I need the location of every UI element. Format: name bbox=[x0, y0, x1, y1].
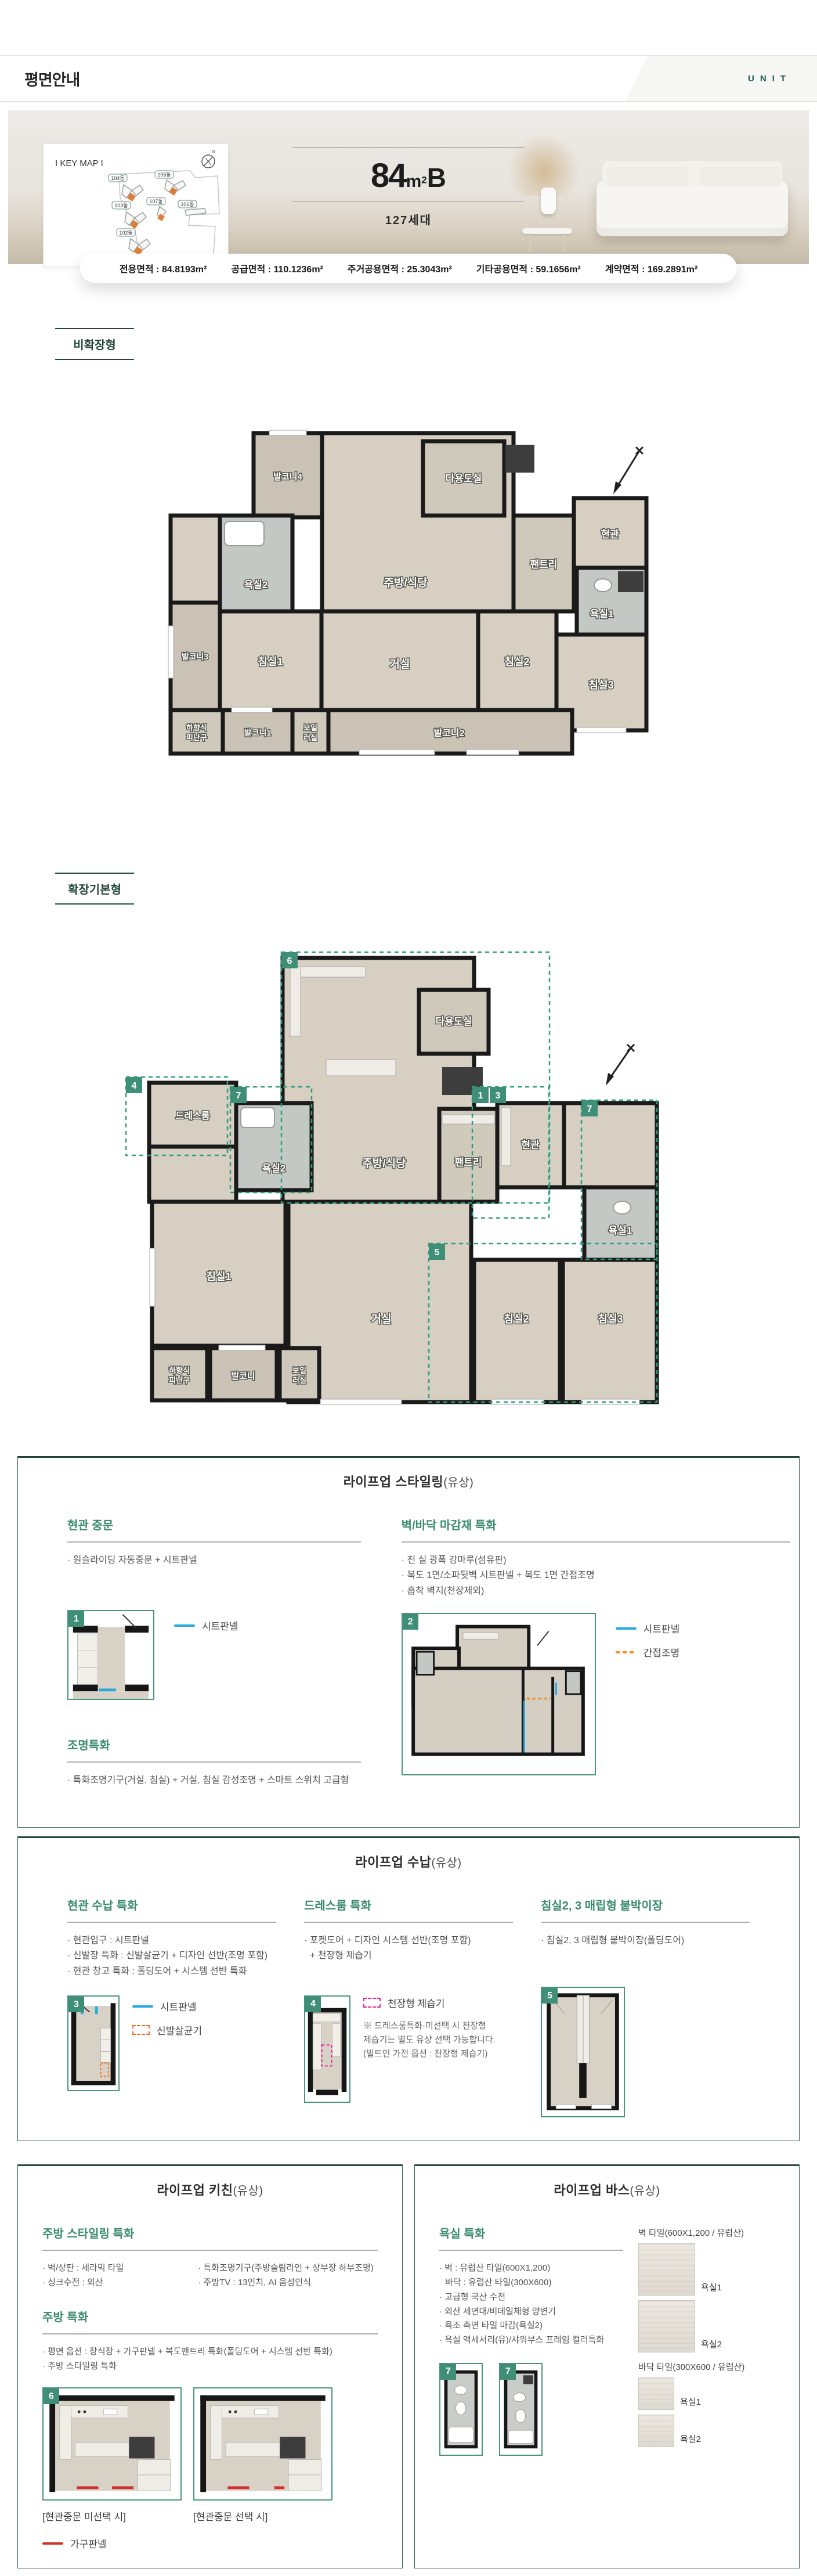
option-badge: 7 bbox=[500, 2364, 516, 2380]
bath-tiles-col: 벽 타일(600X1,200 / 유럽산) 욕실1 욕실2 바닥 타일(300X… bbox=[638, 2224, 775, 2456]
thumb-wall-floor-drawing bbox=[403, 1614, 595, 1774]
storage-col-entrance: 현관 수납 특화 · 현관입구 : 시트판넬 · 신발장 특화 : 신발살균기 … bbox=[67, 1896, 276, 2117]
svg-text:7: 7 bbox=[587, 1104, 592, 1114]
kitchen-caption-no-door: [현관중문 미선택 시] bbox=[42, 2509, 182, 2523]
bullet: · 특화조명기구(거실, 침실) + 거실, 침실 감성조명 + 스마트 스위치… bbox=[67, 1773, 361, 1788]
heading-bath-special: 욕실 특화 bbox=[439, 2224, 623, 2241]
heading-rule bbox=[541, 1922, 750, 1923]
wall-tile-swatch-bath1 bbox=[638, 2243, 695, 2296]
toilet bbox=[594, 579, 612, 592]
bullet: · 침실2, 3 매립형 붙박이장(폴딩도어) bbox=[541, 1933, 750, 1948]
room-label: 발코니2 bbox=[433, 728, 464, 738]
compass-icon: N bbox=[202, 149, 215, 168]
heading-rule bbox=[67, 1761, 361, 1763]
svg-text:6: 6 bbox=[287, 956, 292, 966]
tile-label: 욕실2 bbox=[701, 2338, 722, 2352]
svg-text:7: 7 bbox=[236, 1091, 241, 1101]
legend-sheet-panel: 시트판넬 bbox=[174, 1618, 238, 1633]
bullet: · 포켓도어 + 디자인 시스템 선반(조명 포함) bbox=[304, 1933, 513, 1948]
entrance-arrow-icon bbox=[613, 447, 643, 494]
heading-entrance-storage: 현관 수납 특화 bbox=[67, 1896, 276, 1913]
households-count: 127세대 bbox=[292, 211, 525, 228]
section-lifeup-storage: 라이프업 수납(유상) 현관 수납 특화 · 현관입구 : 시트판넬 · 신발장… bbox=[17, 1836, 800, 2141]
legend-dehumidifier: 천장형 제습기 bbox=[363, 1995, 496, 2010]
hero-banner: I KEY MAP I N bbox=[8, 110, 809, 264]
keymap-drawing: I KEY MAP I N bbox=[44, 144, 229, 268]
area-item: 기타공용면적 : 59.1656m² bbox=[476, 261, 581, 275]
thumb-builtin-closet-drawing bbox=[542, 1988, 624, 2116]
tag-nonexpanded: 비확장형 bbox=[55, 328, 134, 360]
bottom-sections: 라이프업 키친(유상) 주방 스타일링 특화 · 벽/상판 : 세라믹 타일 ·… bbox=[17, 2164, 800, 2568]
room-label: 주방/식당 bbox=[362, 1157, 406, 1170]
floor-tile-swatch-bath2 bbox=[638, 2415, 674, 2447]
bullet: · 주방 스타일링 특화 bbox=[42, 2359, 378, 2374]
title-rule-bottom bbox=[292, 201, 525, 201]
room-label: 팬트리 bbox=[454, 1157, 482, 1168]
room-label: 러실 bbox=[303, 733, 317, 742]
dressroom-note: 제습기는 별도 유상 선택 가능합니다. bbox=[363, 2033, 496, 2047]
bullet: · 벽 : 유럽산 타일(600X1,200) bbox=[439, 2261, 623, 2276]
option-badge: 2 bbox=[403, 1614, 418, 1630]
room-label: 발코니1 bbox=[244, 728, 272, 737]
side-table bbox=[522, 228, 572, 234]
room-label: 주방/식당 bbox=[384, 577, 428, 589]
section-title: 라이프업 바스(유상) bbox=[439, 2180, 775, 2199]
tile-label: 욕실1 bbox=[680, 2395, 701, 2410]
heading-kitchen-styling: 주방 스타일링 특화 bbox=[42, 2224, 378, 2241]
room-label: 보일 bbox=[292, 1366, 306, 1375]
option-badge: 5 bbox=[542, 1988, 558, 2004]
dehumidifier-swatch bbox=[363, 1998, 381, 2008]
section-title: 라이프업 스타일링(유상) bbox=[67, 1472, 750, 1490]
heading-rule bbox=[42, 2250, 378, 2251]
room-label: 욕실2 bbox=[262, 1163, 285, 1174]
heading-rule bbox=[67, 1541, 361, 1543]
header-corner-panel: UNIT bbox=[626, 56, 817, 101]
svg-text:105동: 105동 bbox=[157, 172, 171, 178]
bullet: · 평면 옵션 : 장식장 + 가구판넬 + 복도팬트리 특화(폴딩도어 + 시… bbox=[42, 2345, 378, 2359]
section-lifeup-bath: 라이프업 바스(유상) 욕실 특화 · 벽 : 유럽산 타일(600X1,200… bbox=[414, 2164, 800, 2568]
room-label: 현관 bbox=[521, 1140, 540, 1151]
tile-label: 욕실2 bbox=[680, 2433, 701, 2447]
room-label: 다용도실 bbox=[435, 1016, 472, 1027]
styling-left-col: 현관 중문 · 원슬라이딩 자동중문 + 시트판넬 1 bbox=[67, 1516, 361, 1789]
heading-rule bbox=[42, 2333, 378, 2334]
option-badge: 7 bbox=[440, 2364, 456, 2380]
room-label: 러실 bbox=[292, 1376, 306, 1385]
floorplan-expanded: 6 4 7 1 3 7 5 다용도실 주방/식당 팬트리 현관 드레스룸 욕실2… bbox=[117, 935, 700, 1405]
bullet: + 천장형 제습기 bbox=[304, 1948, 513, 1963]
area-item: 계약면적 : 169.2891m² bbox=[605, 261, 697, 275]
room-label: 침실1 bbox=[206, 1271, 231, 1282]
room-label: 피난구 bbox=[186, 733, 207, 742]
heading-rule bbox=[67, 1922, 276, 1923]
bullet: · 전 실 광폭 강마루(섬유판) bbox=[402, 1553, 790, 1568]
keymap-card: I KEY MAP I N bbox=[43, 143, 229, 267]
bathtub bbox=[241, 1108, 274, 1127]
toilet bbox=[613, 1201, 631, 1214]
svg-text:1: 1 bbox=[478, 1091, 483, 1101]
heading-rule bbox=[304, 1922, 513, 1923]
heading-rule bbox=[402, 1541, 790, 1543]
room-label: 발코니 bbox=[231, 1371, 255, 1381]
room-label: 하향식 bbox=[169, 1366, 190, 1375]
bullet: 바닥 : 유럽산 타일(300X600) bbox=[439, 2276, 623, 2290]
room-label: 욕실1 bbox=[590, 608, 614, 619]
bullet: · 특화조명기구(주방슬림라인 + 상부장 하부조명) bbox=[198, 2261, 386, 2276]
storage-col-dressroom: 드레스룸 특화 · 포켓도어 + 디자인 시스템 선반(조명 포함) + 천장형… bbox=[304, 1896, 513, 2117]
heading-builtin-closet: 침실2, 3 매립형 붙박이장 bbox=[541, 1896, 750, 1913]
option-badge: 6 bbox=[44, 2388, 59, 2404]
floor-tile-swatch-bath1 bbox=[638, 2377, 674, 2410]
floorplan-nonexpanded-wrap: 발코니4 다용도실 주방/식당 팬트리 현관 욕실2 욕실1 발코니3 침실1 … bbox=[0, 411, 817, 756]
bullet: · 욕실 액세서리(유)/샤워부스 프레임 컬러특화 bbox=[439, 2333, 623, 2348]
room-label: 거실 bbox=[371, 1313, 391, 1325]
shoe-sterilizer-swatch bbox=[132, 2025, 150, 2035]
bath-left-col: 욕실 특화 · 벽 : 유럽산 타일(600X1,200) 바닥 : 유럽산 타… bbox=[439, 2224, 623, 2456]
svg-text:107동: 107동 bbox=[149, 199, 162, 204]
bathtub bbox=[225, 521, 264, 546]
storage-col-closet: 침실2, 3 매립형 붙박이장 · 침실2, 3 매립형 붙박이장(폴딩도어) … bbox=[541, 1896, 750, 2117]
bullet: · 현관 창고 특화 : 폴딩도어 + 시스템 선반 특화 bbox=[67, 1964, 276, 1979]
legend-sheet-panel: 시트판넬 bbox=[616, 1621, 680, 1635]
dressroom-note: (빌트인 가전 옵션 : 천장형 제습기) bbox=[363, 2047, 496, 2061]
area-item: 공급면적 : 110.1236m² bbox=[231, 261, 323, 275]
legend-furniture-panel: 가구판넬 bbox=[42, 2536, 378, 2550]
option-badge: 3 bbox=[68, 1997, 84, 2012]
unit-name: 84m2B bbox=[292, 148, 525, 201]
bullet: · 외산 세면대/비데일체형 양변기 bbox=[439, 2305, 623, 2319]
kitchen-caption-with-door: [현관중문 선택 시] bbox=[193, 2509, 332, 2523]
bullet: · 벽/상판 : 세라믹 타일 bbox=[42, 2261, 190, 2276]
bullet: · 복도 1면/소파뒷벽 시트판넬 + 복도 1면 간접조명 bbox=[402, 1568, 790, 1583]
option-badge: 1 bbox=[68, 1611, 84, 1627]
option-badge: 4 bbox=[305, 1997, 321, 2012]
thumb-entrance-storage: 3 bbox=[67, 1995, 120, 2091]
top-spacer bbox=[0, 0, 817, 55]
indirect-light-swatch bbox=[616, 1651, 637, 1653]
svg-text:104동: 104동 bbox=[111, 175, 124, 181]
room-label: 팬트리 bbox=[530, 559, 558, 570]
floorplan-expanded-wrap: 6 4 7 1 3 7 5 다용도실 주방/식당 팬트리 현관 드레스룸 욕실2… bbox=[0, 935, 817, 1405]
heading-rule bbox=[439, 2250, 623, 2251]
entrance-arrow-icon bbox=[606, 1044, 634, 1086]
thumb-dressroom-drawing bbox=[305, 1997, 349, 2102]
heading-dressroom: 드레스룸 특화 bbox=[304, 1896, 513, 1913]
area-info-bar: 전용면적 : 84.8193m² 공급면적 : 110.1236m² 주거공용면… bbox=[80, 254, 737, 283]
thumb-entrance-door: 1 bbox=[67, 1610, 154, 1700]
room-label: 침실2 bbox=[504, 1313, 529, 1325]
room-label: 피난구 bbox=[169, 1376, 190, 1385]
bullet: · 고급형 국산 수전 bbox=[439, 2290, 623, 2305]
tile-label: 욕실1 bbox=[701, 2281, 722, 2296]
room-label: 욕실1 bbox=[608, 1225, 632, 1236]
thumb-kitchen-with-door bbox=[193, 2387, 332, 2501]
section-title: 라이프업 키친(유상) bbox=[42, 2180, 378, 2199]
room-label: 거실 bbox=[390, 658, 410, 671]
svg-text:106동: 106동 bbox=[180, 201, 194, 207]
room-label: 침실2 bbox=[504, 656, 529, 668]
sheet-panel-swatch bbox=[174, 1624, 195, 1627]
legend-sheet-panel: 시트판넬 bbox=[132, 1999, 202, 2013]
bullet: · 주방TV : 13인치, AI 음성인식 bbox=[198, 2276, 386, 2290]
room-label: 침실1 bbox=[258, 656, 283, 668]
sheet-panel-swatch bbox=[132, 2005, 153, 2008]
room-label: 드레스룸 bbox=[175, 1111, 209, 1121]
svg-text:3: 3 bbox=[495, 1091, 500, 1101]
sofa bbox=[597, 181, 788, 236]
section-title: 라이프업 수납(유상) bbox=[67, 1852, 750, 1871]
area-item: 전용면적 : 84.8193m² bbox=[120, 261, 207, 275]
room-label: 침실3 bbox=[598, 1313, 623, 1325]
plant-vase bbox=[541, 188, 556, 214]
svg-text:5: 5 bbox=[434, 1248, 439, 1258]
svg-text:102동: 102동 bbox=[119, 230, 132, 236]
thumb-builtin-closet: 5 bbox=[541, 1987, 625, 2117]
bullet: · 신발장 특화 : 신발살균기 + 디자인 선반(조명 포함) bbox=[67, 1948, 276, 1963]
thumb-kitchen-drawing bbox=[194, 2388, 331, 2499]
unit-label: UNIT bbox=[748, 74, 791, 84]
thumb-bath1: 7 bbox=[499, 2363, 543, 2456]
floorplan-nonexpanded: 발코니4 다용도실 주방/식당 팬트리 현관 욕실2 욕실1 발코니3 침실1 … bbox=[150, 411, 667, 756]
styling-right-col: 벽/바닥 마감재 특화 · 전 실 광폭 강마루(섬유판) · 복도 1면/소파… bbox=[402, 1516, 790, 1789]
room-label: 욕실2 bbox=[244, 579, 268, 590]
svg-text:103동: 103동 bbox=[114, 203, 128, 208]
legend-indirect-light: 간접조명 bbox=[616, 1645, 680, 1659]
sheet-panel-swatch bbox=[616, 1627, 637, 1630]
room-label: 하향식 bbox=[186, 723, 207, 732]
tag-expanded: 확장기본형 bbox=[55, 873, 134, 905]
bullet: · 흡착 벽지(천장제외) bbox=[402, 1584, 790, 1599]
floor-tile-caption: 바닥 타일(300X600 / 유럽산) bbox=[638, 2361, 775, 2373]
room-label: 발코니3 bbox=[182, 652, 209, 661]
wall-tile-swatch-bath2 bbox=[638, 2300, 695, 2352]
room-label: 보일 bbox=[303, 723, 317, 732]
section-lifeup-styling: 라이프업 스타일링(유상) 현관 중문 · 원슬라이딩 자동중문 + 시트판넬 … bbox=[17, 1456, 800, 1828]
bullet: · 원슬라이딩 자동중문 + 시트판넬 bbox=[67, 1553, 361, 1568]
svg-text:4: 4 bbox=[131, 1081, 136, 1091]
furniture-panel-swatch bbox=[42, 2542, 63, 2545]
area-item: 주거공용면적 : 25.3043m² bbox=[348, 261, 452, 275]
heading-wall-floor: 벽/바닥 마감재 특화 bbox=[402, 1516, 790, 1533]
room-label: 다용도실 bbox=[446, 473, 482, 484]
thumb-kitchen-drawing bbox=[44, 2388, 180, 2499]
thumb-dressroom: 4 bbox=[304, 1995, 350, 2103]
room-label: 침실3 bbox=[588, 679, 613, 691]
heading-entrance-door: 현관 중문 bbox=[67, 1516, 361, 1533]
dressroom-note: ※ 드레스룸특화·미선택 시 천장형 bbox=[363, 2019, 496, 2033]
thumb-bath2: 7 bbox=[439, 2363, 483, 2456]
keymap-title: I KEY MAP I bbox=[55, 158, 103, 168]
room-label: 발코니4 bbox=[273, 472, 302, 482]
bullet: · 욕조 측면 타일 마감(욕실2) bbox=[439, 2319, 623, 2333]
heading-lighting: 조명특화 bbox=[67, 1736, 361, 1753]
bottom-spacer bbox=[0, 2568, 817, 2576]
thumb-wall-floor-plan: 2 bbox=[402, 1613, 596, 1775]
wall-tile-caption: 벽 타일(600X1,200 / 유럽산) bbox=[638, 2226, 775, 2239]
page-title: 평면안내 bbox=[0, 67, 79, 90]
thumb-kitchen-no-door: 6 bbox=[42, 2387, 182, 2501]
svg-text:N: N bbox=[212, 149, 215, 154]
heading-kitchen-special: 주방 특화 bbox=[42, 2308, 378, 2325]
bullet: · 싱크수전 : 외산 bbox=[42, 2276, 190, 2290]
bullet: · 현관입구 : 시트판넬 bbox=[67, 1933, 276, 1948]
section-lifeup-kitchen: 라이프업 키친(유상) 주방 스타일링 특화 · 벽/상판 : 세라믹 타일 ·… bbox=[17, 2164, 403, 2568]
page-header: 평면안내 UNIT bbox=[0, 55, 817, 102]
legend-shoe-sterilizer: 신발살균기 bbox=[132, 2023, 202, 2037]
unit-title-block: 84m2B 127세대 bbox=[292, 147, 525, 228]
room-label: 현관 bbox=[601, 529, 619, 540]
